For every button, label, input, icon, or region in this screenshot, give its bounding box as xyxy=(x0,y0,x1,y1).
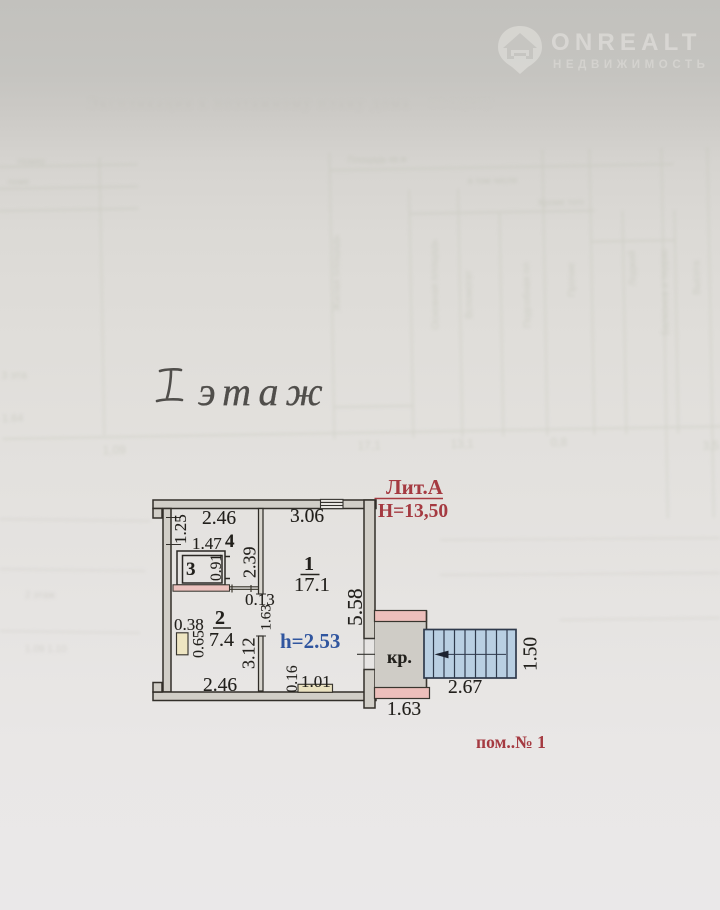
svg-text:Прочие: Прочие xyxy=(566,262,578,297)
svg-text:Лит.А: Лит.А xyxy=(386,475,444,499)
svg-text:3.06: 3.06 xyxy=(290,506,324,527)
svg-text:17.1: 17.1 xyxy=(294,574,330,596)
svg-text:1.63: 1.63 xyxy=(259,604,275,630)
svg-text:17,1: 17,1 xyxy=(357,438,381,452)
svg-text:пом..№ 1: пом..№ 1 xyxy=(476,732,546,752)
svg-text:НЕДВИЖИМОСТЬ: НЕДВИЖИМОСТЬ xyxy=(553,59,709,71)
svg-text:по адресу: по адресу xyxy=(430,94,493,109)
svg-text:2.46: 2.46 xyxy=(203,675,237,696)
svg-text:этаж: этаж xyxy=(198,369,330,414)
svg-text:поме: поме xyxy=(8,176,29,186)
svg-text:Номер: Номер xyxy=(17,156,45,166)
svg-text:Лоджий: Лоджий xyxy=(627,250,639,286)
svg-text:кр.: кр. xyxy=(387,647,412,667)
svg-text:1: 1 xyxy=(304,553,314,575)
svg-text:2: 2 xyxy=(215,607,225,629)
svg-text:13,1: 13,1 xyxy=(450,437,474,451)
svg-text:7.4: 7.4 xyxy=(209,629,234,651)
svg-text:4: 4 xyxy=(225,531,235,552)
svg-text:Площадь кв.м: Площадь кв.м xyxy=(347,154,406,165)
svg-text:0,8: 0,8 xyxy=(550,435,567,449)
svg-text:0.65: 0.65 xyxy=(191,630,208,658)
svg-text:2.67: 2.67 xyxy=(448,677,482,698)
svg-text:3.12: 3.12 xyxy=(239,638,259,670)
svg-text:Экспликация к поэтажному плану: Экспликация к поэтажному плану дома xyxy=(88,96,411,112)
svg-text:Кроме того: Кроме того xyxy=(538,197,584,208)
svg-text:0.91: 0.91 xyxy=(208,554,225,581)
svg-text:Вспомогат: Вспомогат xyxy=(463,270,475,319)
svg-text:1.25: 1.25 xyxy=(171,514,190,544)
svg-text:1,09: 1,09 xyxy=(102,443,126,457)
svg-text:Высота: Высота xyxy=(691,260,703,295)
svg-text:5.58: 5.58 xyxy=(343,588,367,626)
svg-text:0.16: 0.16 xyxy=(284,665,301,692)
svg-text:Подсобная пл: Подсобная пл xyxy=(520,262,533,328)
svg-text:3,5: 3,5 xyxy=(702,438,719,452)
svg-text:в том числе: в том числе xyxy=(468,175,518,186)
svg-text:2 этаж: 2 этаж xyxy=(25,590,55,601)
svg-text:2.39: 2.39 xyxy=(240,547,260,579)
svg-text:1.09 1.10: 1.09 1.10 xyxy=(25,644,67,655)
svg-text:3: 3 xyxy=(186,559,196,580)
svg-text:ONREALT: ONREALT xyxy=(551,29,702,56)
svg-text:Основная площадь: Основная площадь xyxy=(429,239,442,329)
svg-text:1.01: 1.01 xyxy=(301,672,331,691)
svg-text:1.64: 1.64 xyxy=(2,413,24,425)
svg-text:1.47: 1.47 xyxy=(192,534,222,553)
svg-text:Н=13,50: Н=13,50 xyxy=(378,501,448,522)
svg-text:2.46: 2.46 xyxy=(202,508,236,529)
svg-text:1.50: 1.50 xyxy=(521,637,542,671)
svg-text:Жилая площадь: Жилая площадь xyxy=(331,235,343,311)
svg-text:Балконов и террас: Балконов и террас xyxy=(659,248,672,335)
svg-text:3 эта: 3 эта xyxy=(1,370,28,382)
svg-text:1.63: 1.63 xyxy=(387,699,421,720)
svg-text:h=2.53: h=2.53 xyxy=(280,629,340,653)
